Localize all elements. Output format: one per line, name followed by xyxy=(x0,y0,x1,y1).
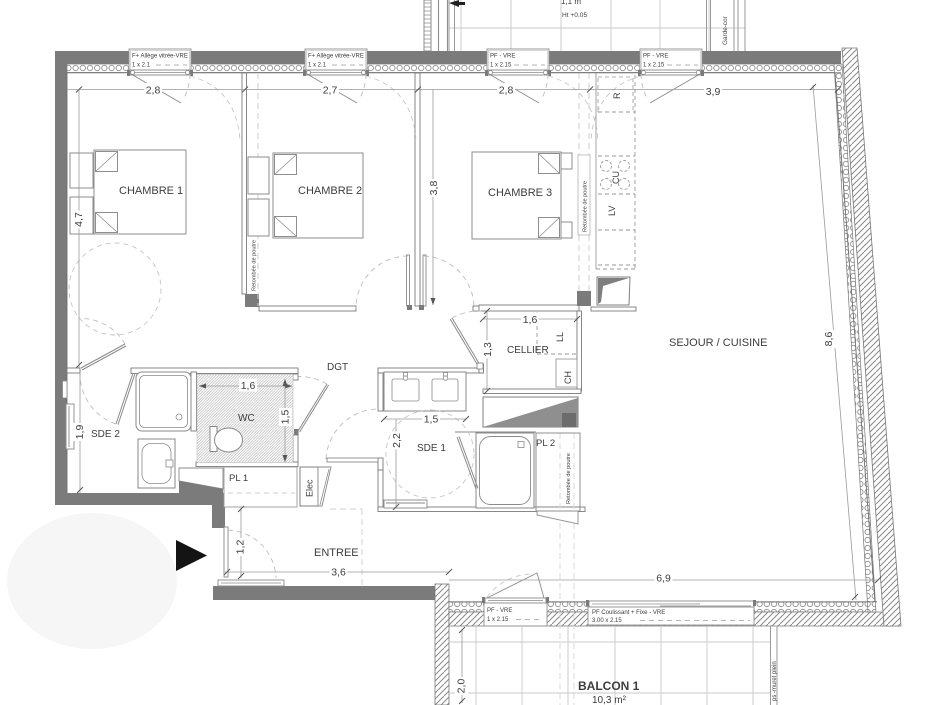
svg-text:PF - VRE: PF - VRE xyxy=(490,54,515,60)
svg-text:Garde-cor: Garde-cor xyxy=(722,15,729,45)
svg-text:Elec: Elec xyxy=(305,479,315,497)
svg-text:3.00 x 2.15: 3.00 x 2.15 xyxy=(592,618,622,624)
svg-text:CHAMBRE 3: CHAMBRE 3 xyxy=(488,187,552,199)
svg-text:PF - VRE: PF - VRE xyxy=(487,608,512,614)
svg-text:1 x 2.15: 1 x 2.15 xyxy=(490,63,512,69)
svg-text:DGT: DGT xyxy=(327,362,348,373)
svg-text:PF Coulissant + Fixe - VRE: PF Coulissant + Fixe - VRE xyxy=(592,610,665,616)
svg-text:1,3: 1,3 xyxy=(482,342,494,357)
svg-text:CHAMBRE 2: CHAMBRE 2 xyxy=(298,185,362,197)
svg-text:SEJOUR / CUISINE: SEJOUR / CUISINE xyxy=(669,337,767,349)
svg-text:2,2: 2,2 xyxy=(391,433,403,448)
svg-text:1 x 2.15: 1 x 2.15 xyxy=(487,617,509,623)
svg-text:2,0: 2,0 xyxy=(455,679,467,694)
svg-text:WC: WC xyxy=(238,413,255,424)
svg-text:1 x 2.15: 1 x 2.15 xyxy=(643,63,665,69)
svg-text:LV: LV xyxy=(607,206,617,216)
svg-text:1,5: 1,5 xyxy=(424,413,439,425)
svg-text:1,6: 1,6 xyxy=(241,380,256,392)
svg-text:2,7: 2,7 xyxy=(323,84,338,96)
svg-text:10,3 m²: 10,3 m² xyxy=(592,695,627,705)
svg-text:ENTREE: ENTREE xyxy=(314,547,359,559)
svg-text:F+ Allège vitrée-VRE: F+ Allège vitrée-VRE xyxy=(132,54,188,60)
svg-text:3,8: 3,8 xyxy=(428,181,440,196)
svg-text:CELLIER: CELLIER xyxy=(507,345,549,356)
svg-text:R: R xyxy=(612,92,622,99)
svg-text:ps -muret plein: ps -muret plein xyxy=(772,661,778,701)
svg-text:3,9: 3,9 xyxy=(706,86,721,98)
svg-text:PL 1: PL 1 xyxy=(229,473,248,484)
svg-text:SDE 1: SDE 1 xyxy=(417,443,446,454)
svg-text:PL 2: PL 2 xyxy=(536,438,555,449)
svg-text:8,6: 8,6 xyxy=(823,332,835,347)
svg-text:CHAMBRE 1: CHAMBRE 1 xyxy=(119,185,183,197)
svg-text:CU: CU xyxy=(611,171,621,184)
svg-text:1,9: 1,9 xyxy=(74,425,86,440)
svg-text:1,5: 1,5 xyxy=(279,410,291,425)
svg-text:4,7: 4,7 xyxy=(73,212,85,227)
svg-text:1,2: 1,2 xyxy=(234,540,246,555)
svg-text:2,8: 2,8 xyxy=(146,84,161,96)
svg-text:BALCON 1: BALCON 1 xyxy=(578,679,640,693)
svg-text:LL: LL xyxy=(555,332,565,342)
svg-text:PF - VRE: PF - VRE xyxy=(643,54,668,60)
svg-text:1,1 m: 1,1 m xyxy=(561,0,581,6)
svg-text:F+ Allège vitrée-VRE: F+ Allège vitrée-VRE xyxy=(308,54,364,60)
svg-text:3,6: 3,6 xyxy=(331,566,346,578)
svg-text:1 x 2.1: 1 x 2.1 xyxy=(308,63,327,69)
svg-text:1,6: 1,6 xyxy=(523,314,538,326)
svg-text:CH: CH xyxy=(563,371,573,384)
svg-text:6,9: 6,9 xyxy=(656,572,671,584)
svg-text:SDE 2: SDE 2 xyxy=(91,429,120,440)
svg-text:Retombée de poutre: Retombée de poutre xyxy=(252,240,258,291)
svg-text:1 x 2.1: 1 x 2.1 xyxy=(132,63,151,69)
svg-text:Retombée de poutre: Retombée de poutre xyxy=(583,181,589,232)
svg-text:2,8: 2,8 xyxy=(499,84,514,96)
svg-text:Retombée de poutre: Retombée de poutre xyxy=(566,453,572,504)
svg-text:Ht +0.05: Ht +0.05 xyxy=(562,12,587,19)
